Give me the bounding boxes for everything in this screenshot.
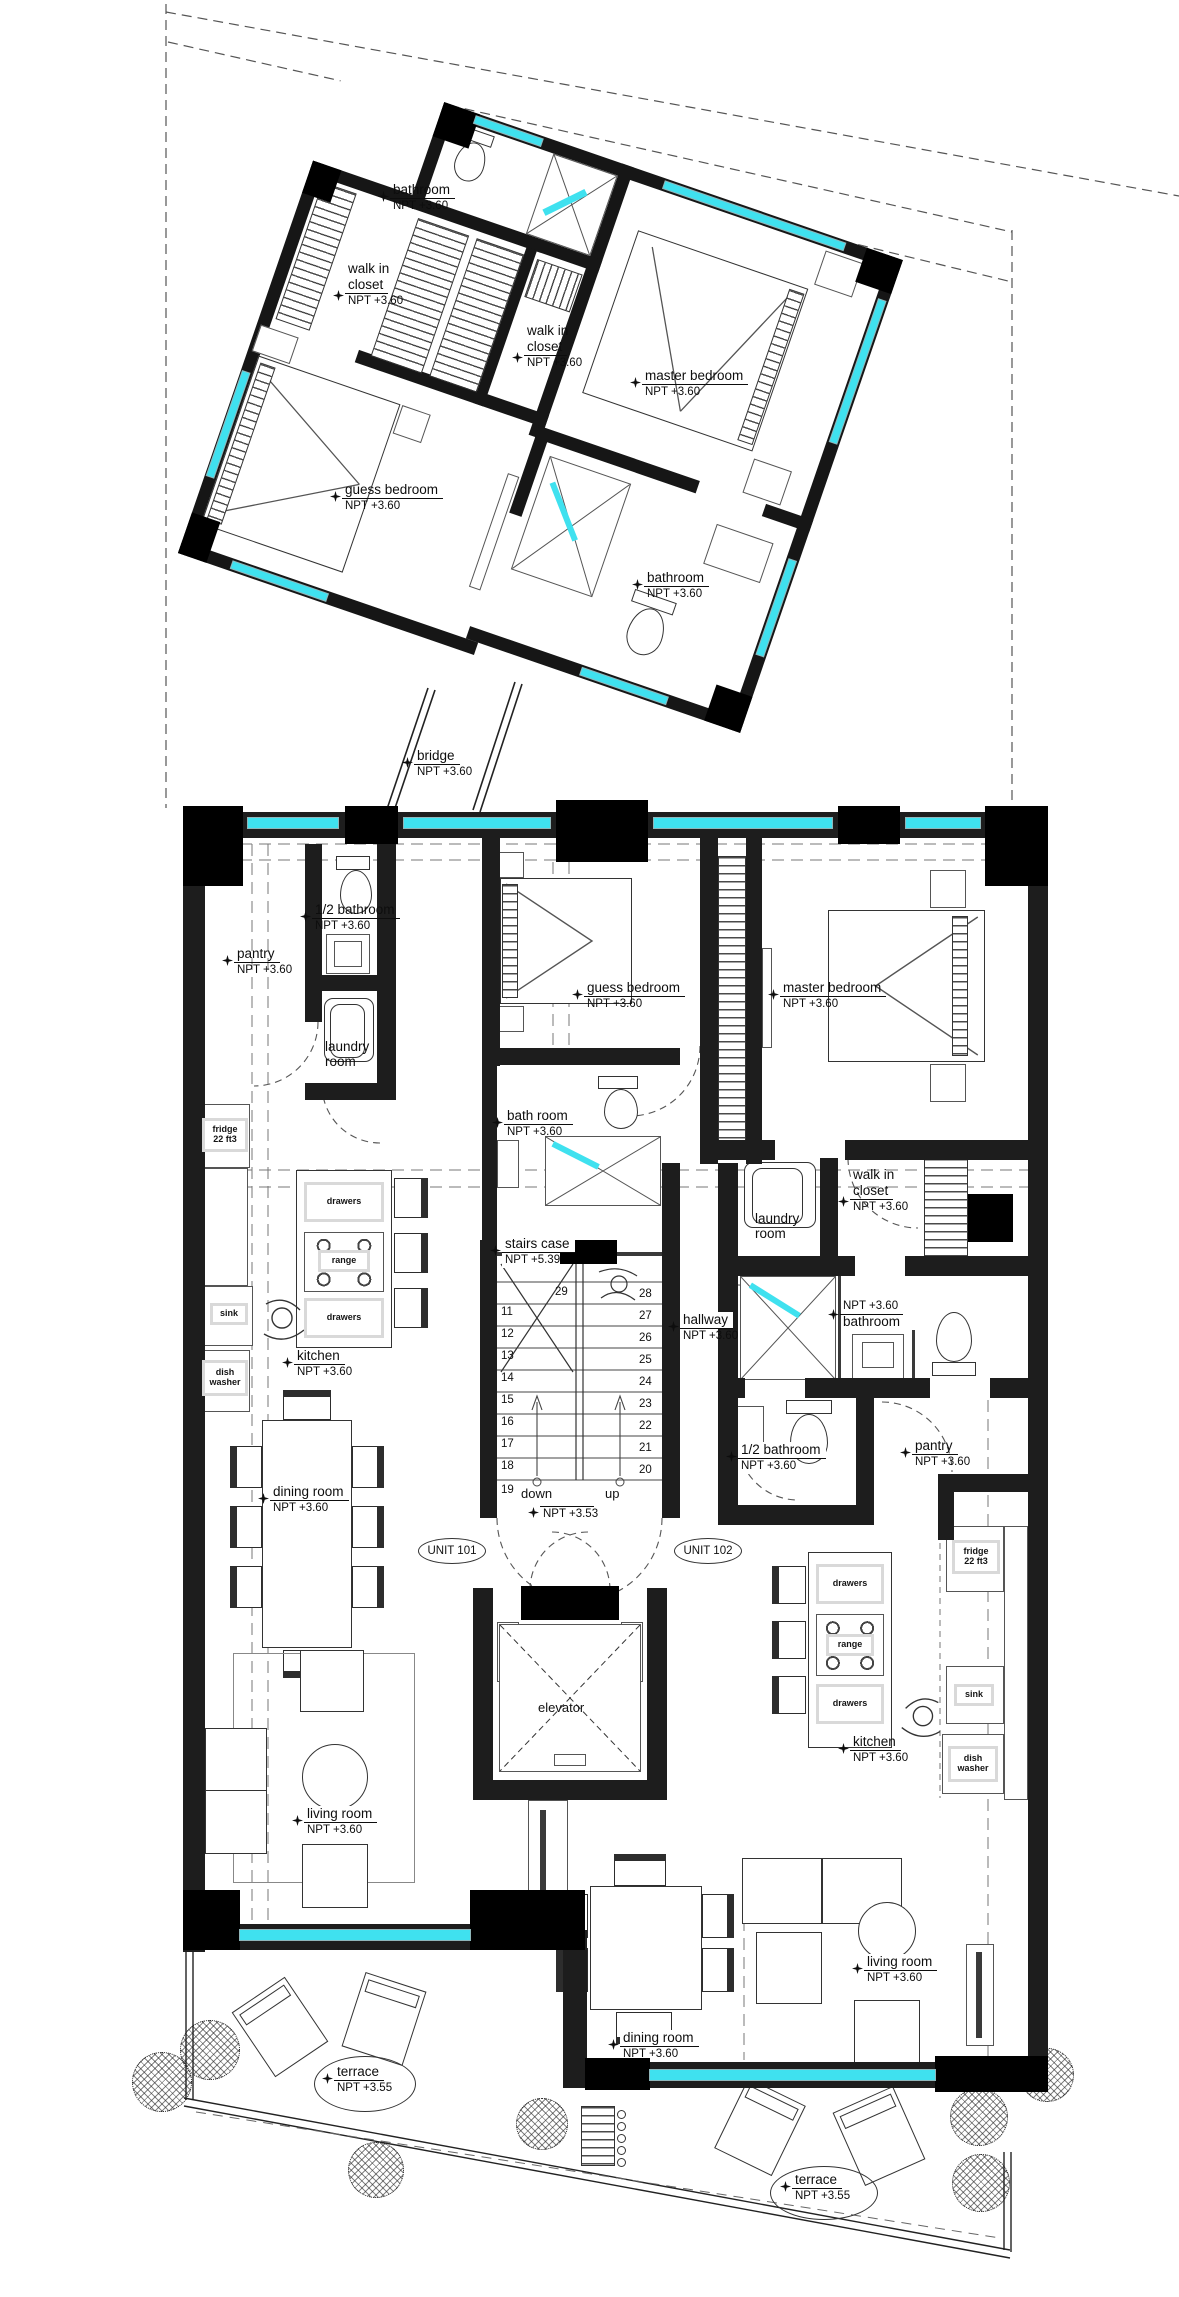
stool bbox=[394, 1178, 428, 1218]
closet-shelving bbox=[924, 1158, 968, 1258]
label-living-left: living room NPT +3.60 bbox=[292, 1806, 377, 1838]
nightstand bbox=[930, 870, 966, 908]
drawers-text: drawers bbox=[327, 1313, 362, 1323]
room-name: laundry bbox=[322, 1040, 369, 1055]
elevator-sill bbox=[554, 1754, 586, 1766]
stair-num: 20 bbox=[639, 1464, 652, 1476]
label-marker bbox=[780, 2181, 791, 2192]
chair bbox=[702, 1894, 734, 1938]
stairs-down-label: down bbox=[521, 1486, 552, 1501]
dishwasher-label: dish washer bbox=[948, 1746, 998, 1782]
coffee-table bbox=[302, 1744, 368, 1810]
unit-102-tag: UNIT 102 bbox=[674, 1538, 742, 1564]
chair bbox=[702, 1948, 734, 1992]
label-marker bbox=[838, 1743, 849, 1754]
label-terrace-left: terrace NPT +3.55 bbox=[322, 2064, 392, 2096]
closet-pier bbox=[968, 1194, 1013, 1242]
window-half-bath-left bbox=[248, 818, 338, 828]
label-marker bbox=[838, 1196, 849, 1207]
wall bbox=[305, 975, 396, 991]
room-npt: NPT +3.55 bbox=[334, 2081, 392, 2096]
window-living-right bbox=[650, 2070, 935, 2080]
stair-num: 21 bbox=[639, 1442, 652, 1454]
label-guess-bottom: guess bedroom NPT +3.60 bbox=[572, 980, 685, 1012]
range-label: range bbox=[826, 1634, 874, 1656]
wall bbox=[938, 1474, 1028, 1492]
room-name: master bedroom bbox=[780, 980, 886, 997]
room-npt: NPT +5.39 bbox=[502, 1253, 560, 1268]
label-marker bbox=[668, 1321, 679, 1332]
label-marker bbox=[322, 2073, 333, 2084]
room-name: pantry bbox=[912, 1438, 958, 1455]
dish-text2: washer bbox=[957, 1764, 988, 1774]
chair bbox=[352, 1506, 384, 1548]
chair bbox=[283, 1390, 331, 1420]
tree bbox=[348, 2142, 404, 2198]
room-name: walk in bbox=[850, 1168, 894, 1183]
stair-num: 11 bbox=[501, 1306, 513, 1318]
pier-ne bbox=[985, 806, 1048, 886]
room-name: dining room bbox=[620, 2030, 699, 2047]
room-name: bathroom bbox=[840, 1315, 900, 1330]
room-npt: NPT +3.60 bbox=[912, 1455, 970, 1470]
label-bathroom-top: bathroom NPT +3.60 bbox=[378, 182, 455, 214]
stair-well: 29 11 12 13 14 15 16 17 18 19 28 27 26 2… bbox=[497, 1262, 662, 1506]
stair-num: 17 bbox=[501, 1438, 514, 1450]
room-name: room bbox=[752, 1227, 786, 1242]
stair-num: 24 bbox=[639, 1376, 652, 1388]
partition bbox=[912, 1330, 915, 1380]
label-marker bbox=[900, 1447, 911, 1458]
room-npt: NPT +3.60 bbox=[840, 1300, 903, 1315]
label-living-right: living room NPT +3.60 bbox=[852, 1954, 937, 1986]
label-stairs-case: stairs case NPT +5.39 bbox=[490, 1236, 575, 1268]
room-name: kitchen bbox=[850, 1734, 901, 1751]
room-npt: NPT +3.60 bbox=[780, 997, 838, 1012]
armchair bbox=[302, 1844, 368, 1908]
room-name: terrace bbox=[334, 2064, 384, 2081]
room-npt: NPT +3.60 bbox=[312, 919, 370, 934]
room-name: bathroom bbox=[644, 570, 709, 587]
chair bbox=[230, 1566, 262, 1608]
room-npt: NPT +3.60 bbox=[738, 1459, 796, 1474]
pier-nw bbox=[183, 806, 243, 886]
sink-label: sink bbox=[954, 1684, 994, 1706]
pier-s1 bbox=[470, 1890, 585, 1950]
range-text: range bbox=[838, 1640, 863, 1650]
stair-num: 25 bbox=[639, 1354, 652, 1366]
label-marker bbox=[512, 352, 523, 363]
elevator-wall bbox=[473, 1588, 493, 1800]
pier-n1 bbox=[345, 806, 398, 844]
room-npt: NPT +3.60 bbox=[850, 1751, 908, 1766]
drawers-label: drawers bbox=[816, 1564, 884, 1604]
dishwasher-label: dish washer bbox=[202, 1360, 248, 1396]
tree bbox=[952, 2154, 1010, 2212]
step-wall-mid bbox=[563, 1930, 587, 2088]
drawers-label: drawers bbox=[816, 1684, 884, 1724]
dish-text2: washer bbox=[209, 1378, 240, 1388]
label-bridge: bridge NPT +3.60 bbox=[402, 748, 472, 780]
tv-screen bbox=[976, 1952, 982, 2038]
sink-basin bbox=[334, 941, 362, 967]
stair-num: 23 bbox=[639, 1398, 652, 1410]
label-kitchen-left: kitchen NPT +3.60 bbox=[282, 1348, 352, 1380]
room-npt: NPT +3.60 bbox=[234, 963, 292, 978]
stair-num: 18 bbox=[501, 1460, 514, 1472]
elevator-cab bbox=[499, 1624, 641, 1772]
wall bbox=[718, 1140, 775, 1160]
plant-strip bbox=[952, 916, 968, 1056]
stool bbox=[772, 1621, 806, 1659]
wall bbox=[480, 1240, 497, 1518]
label-master-bottom: master bedroom NPT +3.60 bbox=[768, 980, 886, 1012]
room-name: closet bbox=[850, 1183, 893, 1200]
room-npt: NPT +3.53 bbox=[540, 1507, 598, 1522]
label-marker bbox=[492, 1117, 503, 1128]
room-name: kitchen bbox=[294, 1348, 345, 1365]
room-npt: NPT +3.60 bbox=[620, 2047, 678, 2062]
label-walkin-right: walk in closet NPT +3.60 bbox=[838, 1168, 908, 1215]
label-terrace-right: terrace NPT +3.55 bbox=[780, 2172, 850, 2204]
wall bbox=[938, 1492, 954, 1540]
label-marker bbox=[608, 2039, 619, 2050]
room-name: closet bbox=[524, 339, 567, 356]
room-name: bathroom bbox=[390, 182, 455, 199]
label-kitchen-right: kitchen NPT +3.60 bbox=[838, 1734, 908, 1766]
tree bbox=[516, 2098, 568, 2150]
drawers-text: drawers bbox=[327, 1197, 362, 1207]
window-master-bedroom-2 bbox=[906, 818, 980, 828]
room-name: bridge bbox=[414, 748, 460, 765]
label-pantry-left: pantry NPT +3.60 bbox=[222, 946, 292, 978]
window-living-left bbox=[240, 1930, 470, 1940]
label-marker bbox=[292, 1815, 303, 1826]
label-marker bbox=[378, 191, 389, 202]
elevator-wall bbox=[473, 1780, 667, 1800]
label-laundry-left: laundry room bbox=[322, 1040, 369, 1069]
wall bbox=[805, 1378, 930, 1398]
room-name: walk in bbox=[345, 262, 389, 277]
label-dining-left: dining room NPT +3.60 bbox=[258, 1484, 349, 1516]
room-npt: NPT +3.60 bbox=[644, 587, 702, 602]
stool bbox=[394, 1288, 428, 1328]
wall bbox=[482, 1065, 497, 1240]
counter bbox=[203, 1168, 248, 1286]
nightstand bbox=[930, 1064, 966, 1102]
label-marker bbox=[852, 1963, 863, 1974]
room-npt: NPT +3.60 bbox=[864, 1971, 922, 1986]
tree bbox=[950, 2088, 1008, 2146]
unit-101-text: UNIT 101 bbox=[427, 1545, 476, 1557]
elevator-wall bbox=[647, 1588, 667, 1800]
sink-text: sink bbox=[220, 1309, 238, 1319]
label-marker bbox=[282, 1357, 293, 1368]
wall bbox=[905, 1256, 1028, 1276]
toilet bbox=[604, 1089, 638, 1129]
label-walkin-top-left: walk in closet NPT +3.60 bbox=[333, 262, 403, 309]
label-elevator: elevator bbox=[538, 1700, 584, 1715]
room-name: master bedroom bbox=[642, 368, 748, 385]
room-npt: NPT +3.60 bbox=[345, 294, 403, 309]
label-guess-top: guess bedroom NPT +3.60 bbox=[330, 482, 443, 514]
pier-s2 bbox=[585, 2058, 650, 2090]
tree bbox=[180, 2020, 240, 2080]
room-npt: NPT +3.60 bbox=[584, 997, 642, 1012]
wall bbox=[305, 1083, 396, 1100]
drawers-text: drawers bbox=[833, 1699, 868, 1709]
label-marker bbox=[330, 491, 341, 502]
pier-sw bbox=[183, 1890, 240, 1950]
drawers-text: drawers bbox=[833, 1579, 868, 1589]
stair-num: 22 bbox=[639, 1420, 652, 1432]
grill-knob bbox=[617, 2146, 626, 2155]
upper-stair-flight bbox=[718, 856, 746, 1152]
range-label: range bbox=[318, 1250, 370, 1272]
fridge-size: 22 ft3 bbox=[213, 1135, 237, 1145]
room-npt: NPT +3.60 bbox=[642, 385, 700, 400]
chair bbox=[614, 1854, 666, 1886]
wall bbox=[856, 1398, 874, 1525]
stairs-up-label: up bbox=[605, 1486, 619, 1501]
fridge-label: fridge 22 ft3 bbox=[202, 1118, 248, 1152]
wall bbox=[990, 1378, 1028, 1398]
room-npt: NPT +3.60 bbox=[342, 499, 400, 514]
fridge-label: fridge 22 ft3 bbox=[952, 1540, 1000, 1574]
plant-strip bbox=[502, 884, 518, 998]
grill-knob bbox=[617, 2158, 626, 2167]
room-npt: NPT +3.60 bbox=[390, 199, 448, 214]
label-marker bbox=[630, 377, 641, 388]
chair bbox=[352, 1446, 384, 1488]
grill-knob bbox=[617, 2110, 626, 2119]
wall bbox=[482, 1048, 680, 1065]
room-name: closet bbox=[345, 277, 388, 294]
room-name: 1/2 bathroom bbox=[738, 1442, 826, 1459]
shower bbox=[740, 1276, 836, 1380]
stair-num: 26 bbox=[639, 1332, 652, 1344]
room-npt: NPT +3.60 bbox=[304, 1823, 362, 1838]
toilet bbox=[936, 1312, 972, 1362]
room-name: laundry bbox=[752, 1212, 799, 1227]
room-npt: NPT +3.60 bbox=[504, 1125, 562, 1140]
room-name: stairs case bbox=[502, 1236, 575, 1253]
drawers-label: drawers bbox=[304, 1182, 384, 1222]
elevator-door-wall bbox=[521, 1586, 619, 1620]
armchair bbox=[756, 1932, 822, 2004]
unit-102-text: UNIT 102 bbox=[683, 1545, 732, 1557]
pier-se bbox=[935, 2056, 1048, 2092]
wall bbox=[377, 838, 396, 1100]
toilet-tank bbox=[598, 1076, 638, 1089]
room-npt: NPT +3.60 bbox=[414, 765, 472, 780]
window-guess-bedroom bbox=[404, 818, 550, 828]
label-half-bath-left: 1/2 bathroom NPT +3.60 bbox=[300, 902, 400, 934]
stair-num: 29 bbox=[555, 1286, 568, 1298]
label-master-top: master bedroom NPT +3.60 bbox=[630, 368, 748, 400]
room-name: hallway bbox=[680, 1312, 733, 1329]
room-name: guess bedroom bbox=[342, 482, 443, 499]
label-bathroom-top2: bathroom NPT +3.60 bbox=[632, 570, 709, 602]
room-name: guess bedroom bbox=[584, 980, 685, 997]
wall bbox=[820, 1158, 838, 1262]
label-marker bbox=[402, 757, 413, 768]
drawers-label: drawers bbox=[304, 1298, 384, 1338]
armchair bbox=[300, 1650, 364, 1712]
armchair bbox=[854, 2000, 920, 2064]
room-npt: NPT +3.60 bbox=[270, 1501, 328, 1516]
stair-num: 15 bbox=[501, 1394, 514, 1406]
floor-plan: fridge 22 ft3 sink dish washer drawers r… bbox=[0, 0, 1179, 2297]
counter bbox=[1004, 1526, 1028, 1800]
label-marker bbox=[333, 290, 344, 301]
stool bbox=[772, 1676, 806, 1714]
label-pantry-right: pantry NPT +3.60 bbox=[900, 1438, 970, 1470]
shower bbox=[545, 1136, 661, 1206]
sofa bbox=[205, 1728, 267, 1791]
label-marker bbox=[490, 1245, 501, 1256]
unit-101-tag: UNIT 101 bbox=[418, 1538, 486, 1564]
label-marker bbox=[632, 579, 643, 590]
person-figure bbox=[258, 1290, 310, 1348]
fridge-size: 22 ft3 bbox=[964, 1557, 988, 1567]
pier-n2 bbox=[838, 806, 900, 844]
label-walkin-top-mid: walk in closet NPT +3.60 bbox=[512, 324, 582, 371]
toilet-tank bbox=[932, 1362, 976, 1376]
room-name: room bbox=[322, 1055, 356, 1070]
sofa bbox=[205, 1790, 267, 1854]
label-marker bbox=[300, 911, 311, 922]
grill-knob bbox=[617, 2134, 626, 2143]
sink-label: sink bbox=[210, 1303, 248, 1325]
room-npt: NPT +3.60 bbox=[294, 1365, 352, 1380]
coffee-table bbox=[858, 1902, 916, 1960]
wall bbox=[845, 1140, 1028, 1160]
wall bbox=[718, 1378, 745, 1398]
label-marker bbox=[258, 1493, 269, 1504]
room-name: walk in bbox=[524, 324, 568, 339]
grill bbox=[581, 2106, 615, 2166]
room-npt: NPT +3.55 bbox=[792, 2189, 850, 2204]
room-name: living room bbox=[304, 1806, 377, 1823]
wall bbox=[718, 1163, 738, 1378]
sink-text: sink bbox=[965, 1690, 983, 1700]
label-laundry-right: laundry room bbox=[752, 1212, 799, 1241]
label-marker bbox=[828, 1309, 839, 1320]
wall-line bbox=[617, 1252, 662, 1256]
toilet-tank bbox=[336, 856, 370, 870]
label-marker bbox=[222, 955, 233, 966]
label-dining-bottom: dining room NPT +3.60 bbox=[608, 2030, 699, 2062]
label-half-bath-right: 1/2 bathroom NPT +3.60 bbox=[726, 1442, 826, 1474]
stair-num: 16 bbox=[501, 1416, 514, 1428]
sofa bbox=[742, 1858, 822, 1924]
chair bbox=[352, 1566, 384, 1608]
room-npt: NPT +3.60 bbox=[680, 1329, 738, 1344]
label-hallway: hallway NPT +3.60 bbox=[668, 1312, 738, 1344]
wall bbox=[718, 1505, 874, 1525]
stool bbox=[394, 1233, 428, 1273]
wall bbox=[700, 838, 718, 1164]
bath-sink bbox=[497, 1140, 519, 1188]
stair-num: 19 bbox=[501, 1484, 514, 1496]
right-exterior-wall bbox=[1028, 806, 1048, 2092]
room-name: bath room bbox=[504, 1108, 573, 1125]
bath-sink-basin bbox=[862, 1342, 894, 1368]
room-name: dining room bbox=[270, 1484, 349, 1501]
label-marker bbox=[726, 1451, 737, 1462]
stool bbox=[772, 1566, 806, 1604]
room-npt: NPT +3.60 bbox=[850, 1200, 908, 1215]
wall bbox=[718, 1256, 855, 1276]
grill-knob bbox=[617, 2122, 626, 2131]
stair-num: 14 bbox=[501, 1372, 514, 1384]
toilet-tank bbox=[786, 1400, 832, 1414]
room-name: pantry bbox=[234, 946, 280, 963]
room-name: 1/2 bathroom bbox=[312, 902, 400, 919]
stair-num: 13 bbox=[501, 1350, 514, 1362]
label-bathroom-right: NPT +3.60 bathroom bbox=[828, 1300, 903, 1329]
window-master-bedroom bbox=[654, 818, 832, 828]
chair bbox=[230, 1446, 262, 1488]
dining-table bbox=[262, 1420, 352, 1648]
label-marker bbox=[768, 989, 779, 1000]
wall bbox=[746, 838, 762, 1164]
pier-bridge-landing bbox=[556, 800, 648, 862]
label-landing-npt: NPT +3.53 bbox=[528, 1505, 598, 1522]
label-marker bbox=[528, 1507, 539, 1518]
stair-num: 12 bbox=[501, 1328, 514, 1340]
stair-num: 27 bbox=[639, 1310, 652, 1322]
room-name: living room bbox=[864, 1954, 937, 1971]
room-npt: NPT +3.60 bbox=[524, 356, 582, 371]
range-text: range bbox=[332, 1256, 357, 1266]
label-bath-room: bath room NPT +3.60 bbox=[492, 1108, 573, 1140]
room-name: terrace bbox=[792, 2172, 842, 2189]
dining-table bbox=[590, 1886, 702, 2010]
label-marker bbox=[572, 989, 583, 1000]
wall bbox=[482, 838, 500, 1066]
stair-num: 28 bbox=[639, 1288, 652, 1300]
